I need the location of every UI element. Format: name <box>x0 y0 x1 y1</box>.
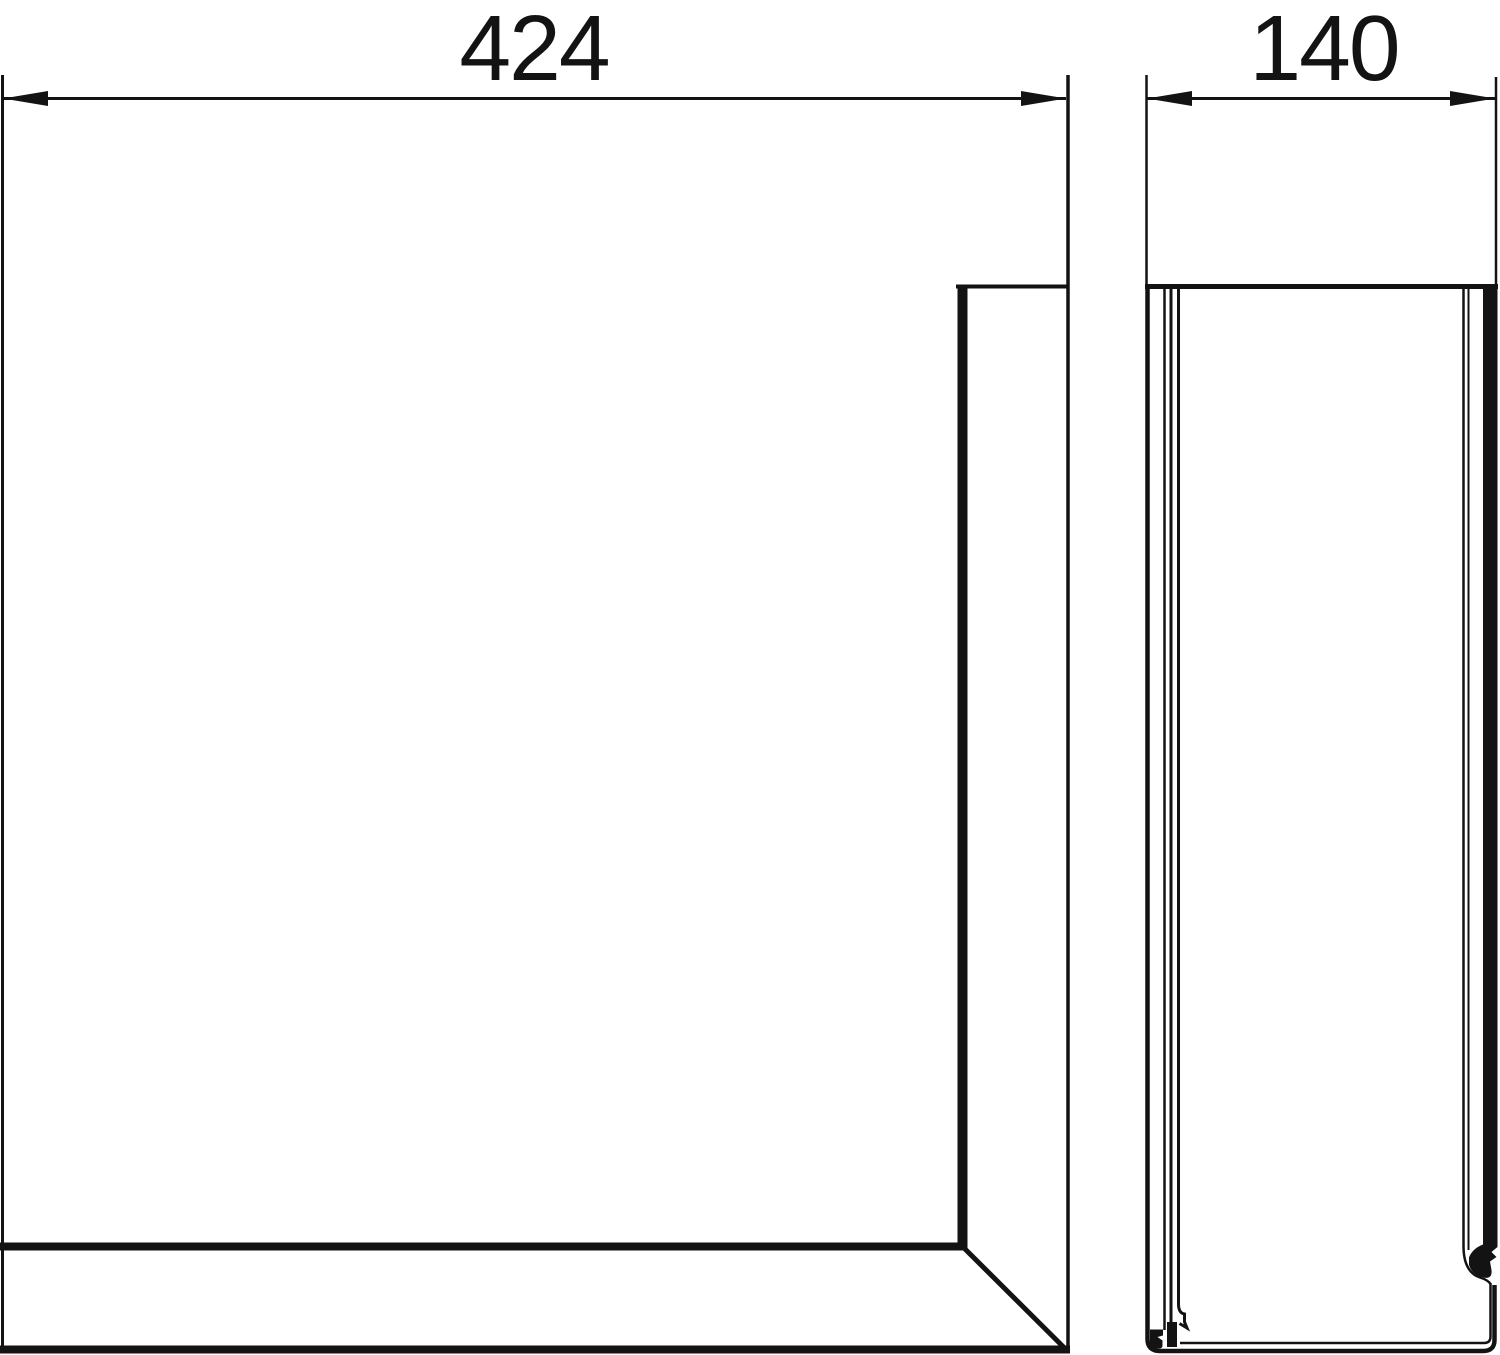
side-bottom-clip-foot <box>1150 1330 1163 1349</box>
side-inner-floor-line <box>1180 1283 1491 1343</box>
flat-angle-dimension-drawing: 424 140 <box>0 0 1500 1355</box>
dimension-140: 140 <box>1147 0 1497 288</box>
dimension-424: 424 <box>3 0 1066 106</box>
front-view <box>0 75 1070 1353</box>
technical-drawing-page: 424 140 <box>0 0 1500 1355</box>
dim-140-arrowhead-right <box>1450 91 1495 106</box>
dim-140-arrowhead-left <box>1147 91 1192 106</box>
side-outer-outline <box>1148 286 1495 1351</box>
dim-140-label: 140 <box>1249 0 1398 100</box>
dim-424-arrowhead-right <box>1021 91 1066 106</box>
side-inner-wall-snap-hook <box>1179 288 1188 1328</box>
front-mitre-diagonal <box>963 1247 1068 1351</box>
side-bottom-clip-bar <box>1167 1322 1177 1347</box>
side-right-lid-band-hook <box>1469 285 1498 1278</box>
dim-424-arrowhead-left <box>3 91 48 106</box>
side-view <box>1145 285 1498 1351</box>
dim-424-label: 424 <box>459 0 608 100</box>
